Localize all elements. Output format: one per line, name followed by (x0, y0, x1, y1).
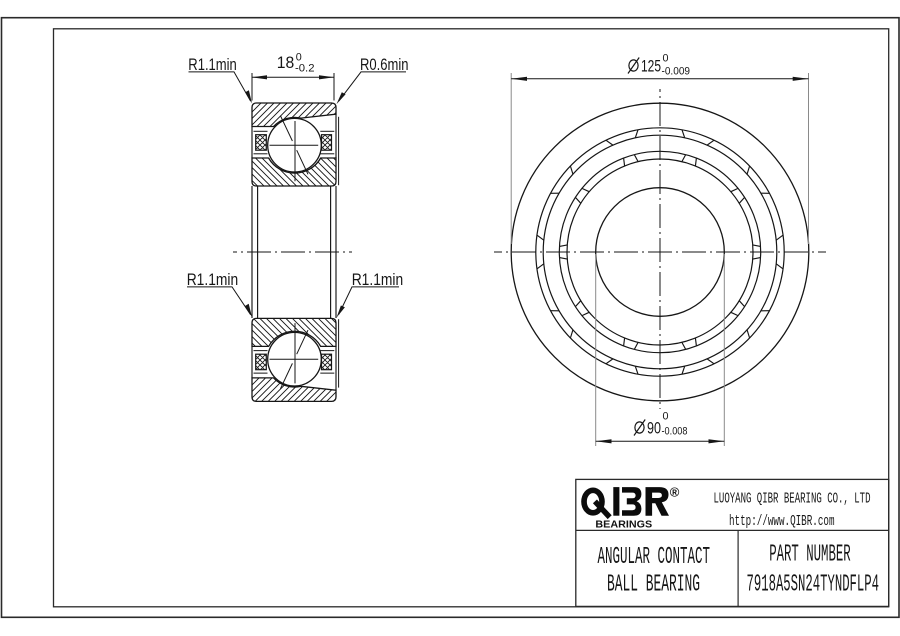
svg-text:90: 90 (647, 418, 661, 437)
svg-text:125: 125 (641, 56, 661, 75)
svg-text:18: 18 (277, 54, 295, 72)
svg-text:-0.009: -0.009 (662, 66, 691, 78)
svg-text:R0.6min: R0.6min (360, 56, 409, 74)
svg-text:ANGULAR CONTACT: ANGULAR CONTACT (598, 544, 711, 571)
svg-text:R1.1min: R1.1min (187, 271, 239, 289)
svg-text:R1.1min: R1.1min (352, 271, 404, 289)
svg-text:0: 0 (663, 411, 669, 423)
svg-text:BEARINGS: BEARINGS (595, 519, 652, 531)
svg-text:-0.2: -0.2 (295, 63, 315, 75)
svg-text:7918A5SN24TYNDFLP4: 7918A5SN24TYNDFLP4 (747, 572, 880, 599)
svg-text:LUOYANG QIBR BEARING CO., LTD: LUOYANG QIBR BEARING CO., LTD (714, 490, 871, 507)
svg-text:PART NUMBER: PART NUMBER (769, 541, 851, 568)
svg-text:-0.008: -0.008 (662, 426, 688, 438)
svg-text:R1.1min: R1.1min (188, 56, 237, 74)
svg-text:0: 0 (663, 53, 669, 65)
svg-text:®: ® (670, 484, 680, 499)
svg-text:BALL BEARING: BALL BEARING (607, 572, 700, 599)
svg-text:http://www.QIBR.com: http://www.QIBR.com (729, 513, 835, 530)
